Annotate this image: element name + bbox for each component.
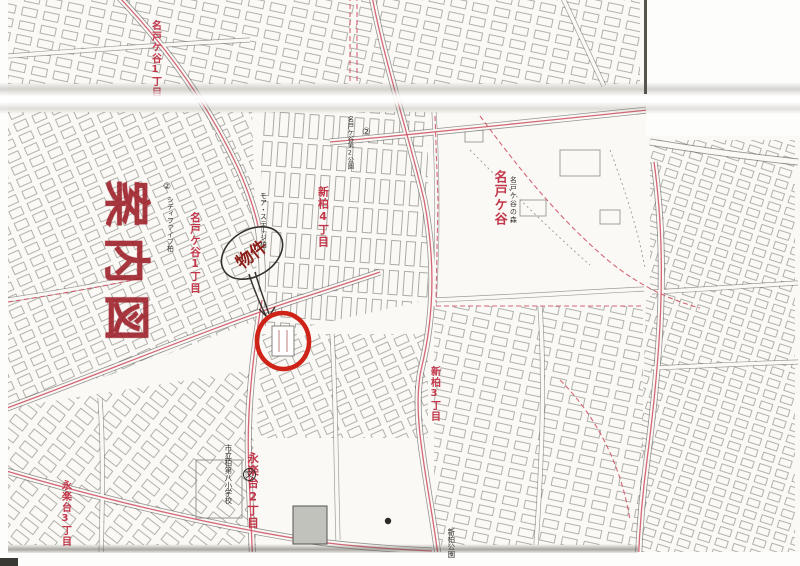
red-location-circle <box>253 310 312 373</box>
paper-fold-crease <box>0 82 800 114</box>
scan-corner-artifact <box>0 558 18 566</box>
property-annotation-text: 物件 <box>232 236 272 273</box>
page-edge-line <box>644 0 647 94</box>
page-edge-shadow <box>8 544 638 553</box>
scanned-map-page: 名戸ケ谷1丁目 名戸ケ谷1丁目 新柏4丁目 新柏3丁目 名戸ケ谷 名戸ケ谷の森 … <box>0 0 800 566</box>
property-annotation-ellipse: 物件 <box>212 216 292 290</box>
annotation-arrow <box>249 272 275 318</box>
